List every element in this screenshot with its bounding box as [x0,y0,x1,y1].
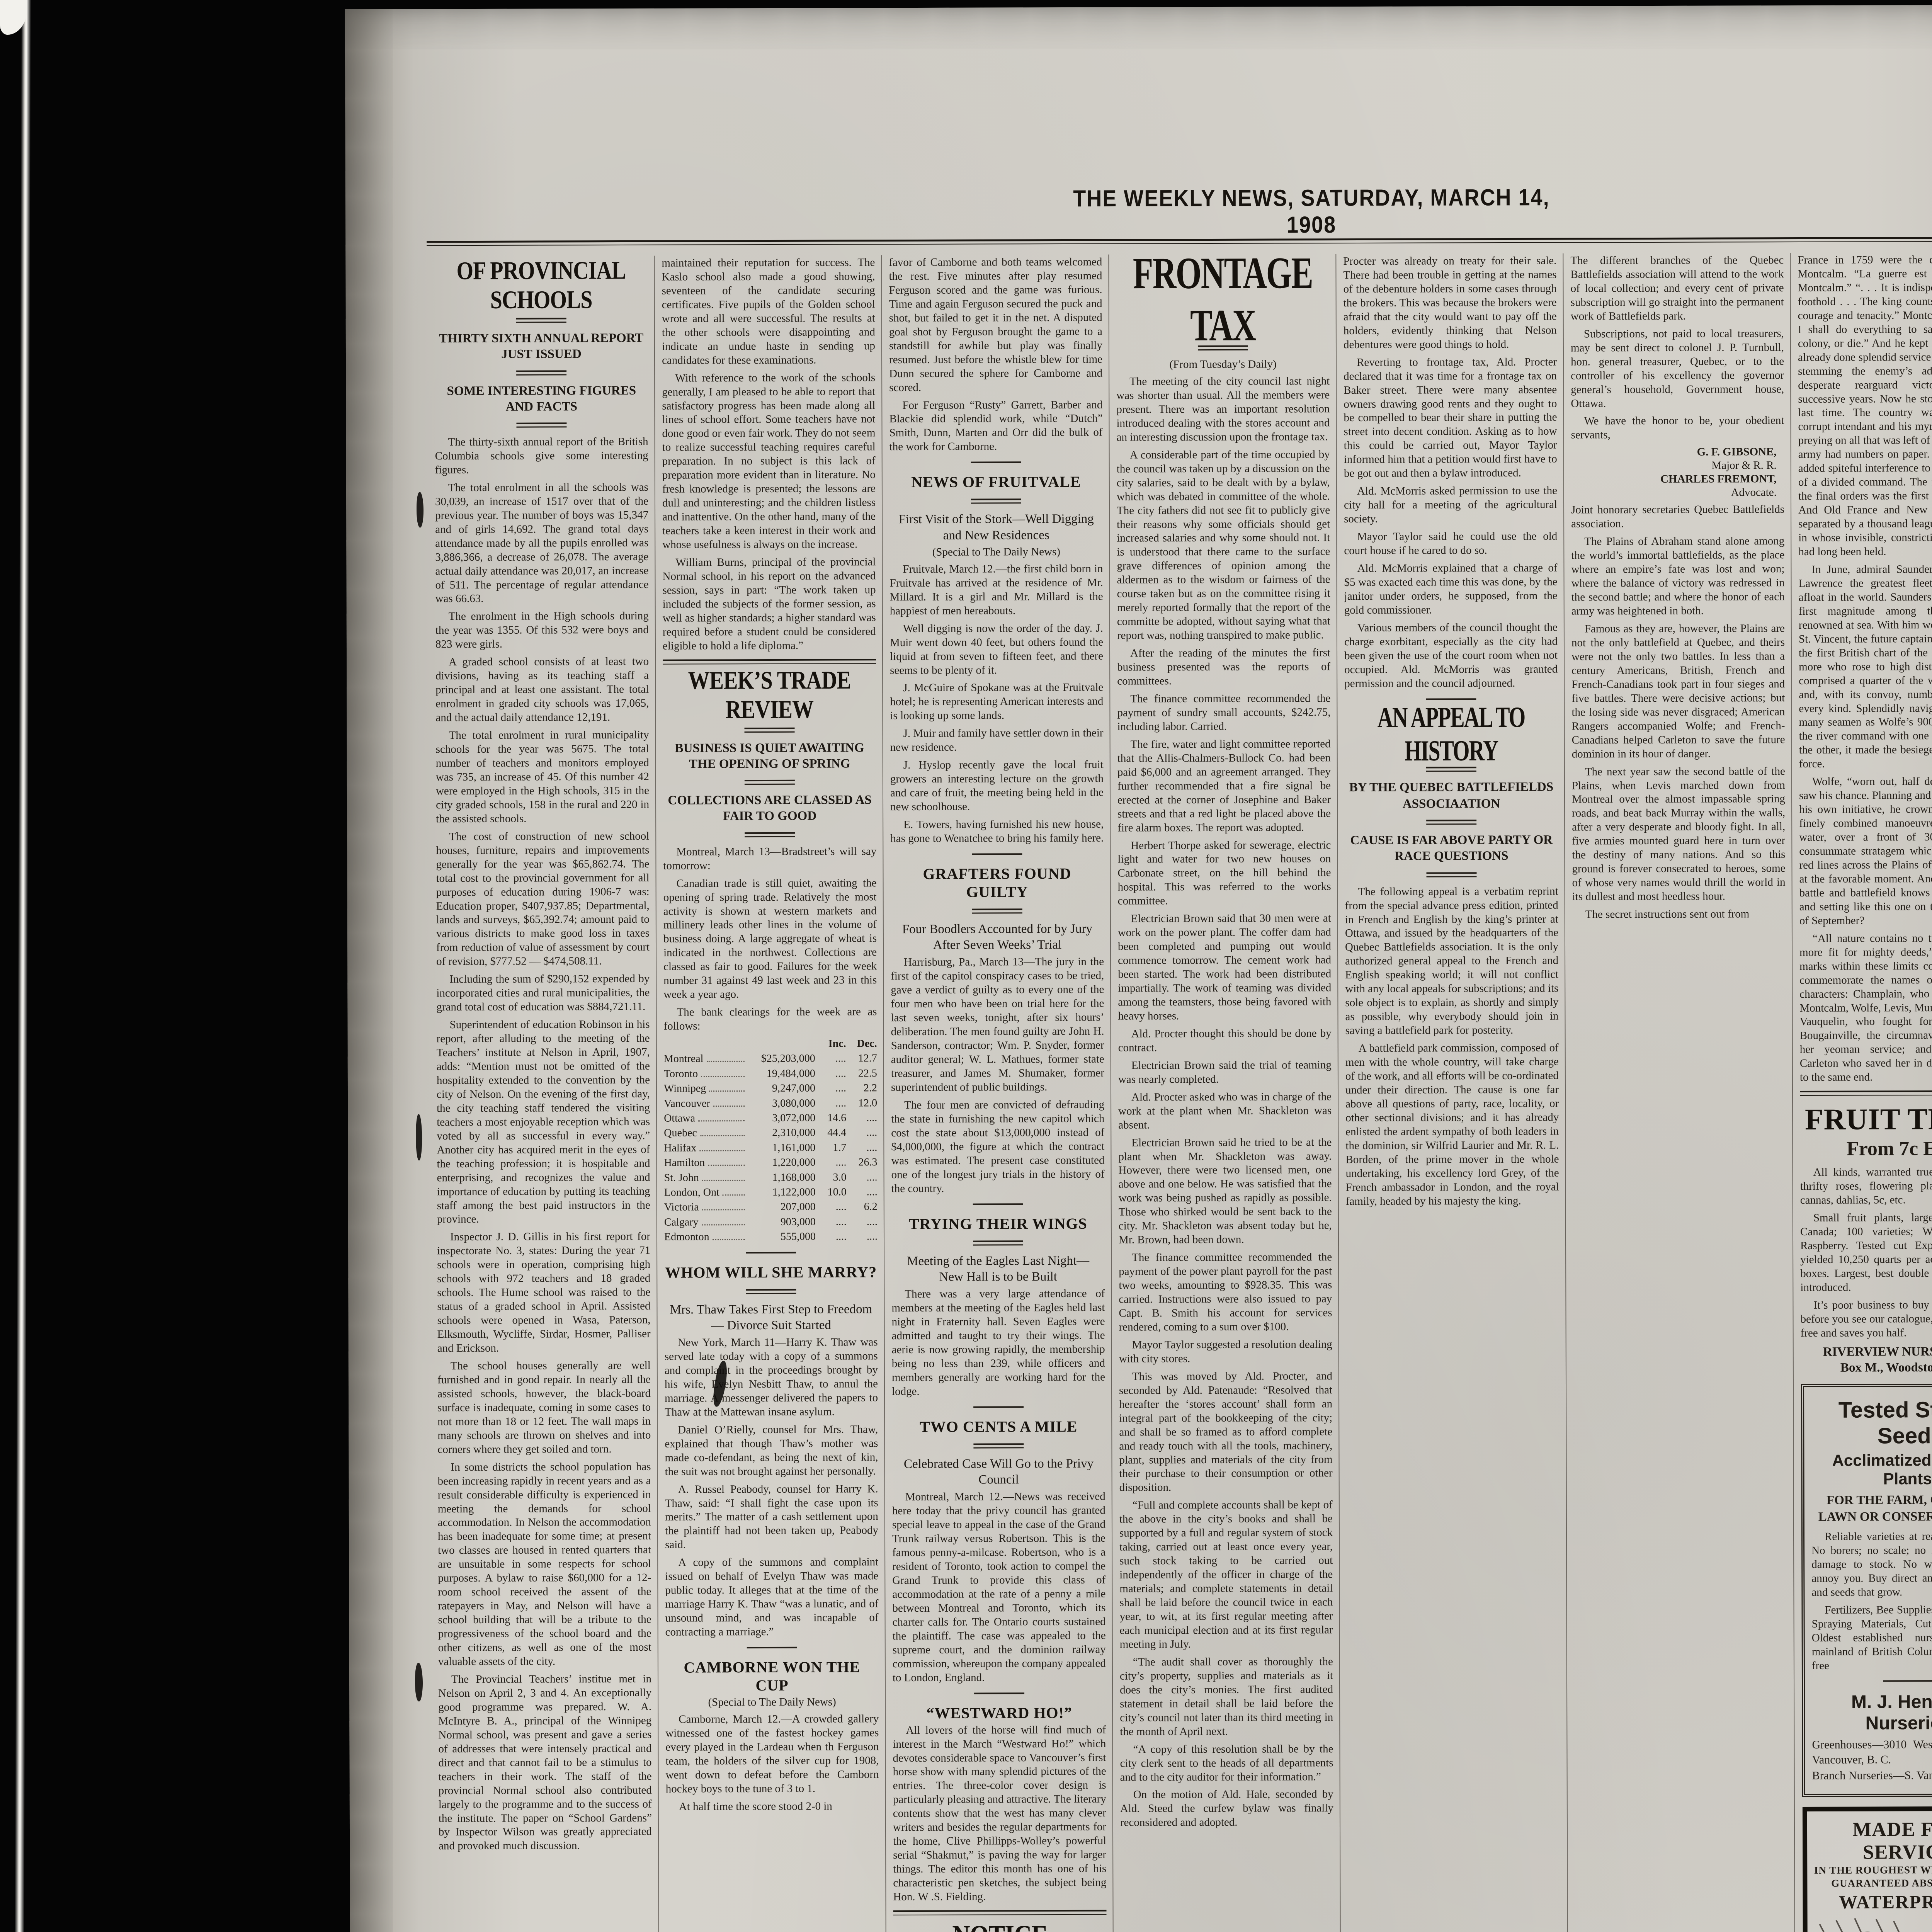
paragraph: “Full and complete accounts shall be kep… [1119,1498,1333,1652]
ad-brand-column: TOWER’S FISH BRAND POMMEL SLICKERS This … [1918,1916,1932,1932]
paragraph: The next year saw the second battle of t… [1572,765,1786,904]
divider-rule [971,499,1021,504]
table-row: Halifax1,161,0001.7.... [664,1141,877,1155]
paragraph: The different branches of the Quebec Bat… [1570,253,1784,323]
ink-smudge [415,1663,423,1701]
appeal-byline-2: ASSOCIAATION [1349,796,1554,813]
article-title-westward: “WESTWARD HO!” [893,1703,1106,1722]
table-row: Quebec2,310,00044.4.... [664,1126,877,1141]
paragraph: A graded school consists of at least two… [435,655,649,725]
paragraph: maintained their reputation for success.… [662,256,875,367]
paragraph: For Ferguson “Rusty” Garrett, Barber and… [889,398,1102,454]
paragraph: The total enrolment in all the schools w… [435,481,649,606]
ad-headline: MADE FOR SERVICE [1813,1818,1932,1864]
article-title-appeal: AN APPEAL TO HISTORY [1344,709,1558,759]
stock-seed-ad: Tested Stock Seed, Acclimatized Trees, P… [1803,1386,1932,1796]
dotted-leader [723,1194,745,1196]
paragraph: The fire, water and light committee repo… [1117,737,1331,835]
paragraph: Various members of the council thought t… [1344,621,1558,690]
table-row: Montreal$25,203,000....12.7 [664,1052,877,1066]
fruit-trees-ad: FRUIT TREES From 7c Each All kinds, warr… [1800,1102,1932,1376]
appeal-signature-title: Advocate. [1571,486,1777,500]
paragraph: With reference to the work of the school… [662,371,876,552]
dotted-leader [702,1180,745,1181]
divider-rule [516,318,566,323]
divider-rule [745,780,795,785]
appeal-signature-title: Major & R. R. [1571,459,1777,473]
divider-rule [974,1692,1024,1696]
paragraph: favor of Camborne and both teams welcome… [889,255,1102,395]
dateline: (Special to The Daily News) [889,546,1103,559]
paragraph: The Provincial Teachers’ institue met in… [438,1672,652,1854]
paragraph: The secret instructions sent out from [1572,907,1786,922]
paragraph: “All nature contains no truer nobler sce… [1799,931,1932,1085]
divider-rule [516,370,566,375]
divider-rule [746,1289,796,1294]
paragraph: Mayor Taylor said he could use the old c… [1344,530,1557,558]
table-header-dec: Dec. [846,1037,877,1051]
paragraph: The following appeal is a verbatim repri… [1345,884,1559,1038]
paragraph: Wolfe, “worn out, half despairing,” at l… [1799,775,1932,928]
dotted-leader [700,1135,745,1136]
newspaper-page: THE WEEKLY NEWS, SATURDAY, MARCH 14, 190… [345,5,1932,1932]
ad-subtitle: From 7c Each [1800,1137,1932,1160]
paragraph: Well digging is now the order of the day… [890,621,1103,677]
dotted-leader [713,1105,745,1107]
dotted-leader [709,1090,745,1092]
paragraph: A copy of the summons and complaint issu… [665,1556,879,1639]
dotted-leader [701,1076,745,1077]
ad-paragraph: All kinds, warranted true to name, clean… [1800,1165,1932,1207]
paragraph: Montreal, March 13—Bradstreet’s will say… [663,845,876,873]
article-deck: First Visit of the Stork—Well Digging an… [893,511,1099,544]
book-spine-edge [14,0,31,1932]
divider-rule [1427,872,1477,877]
ad-subtitle: Acclimatized Trees, Plants [1811,1451,1932,1488]
article-deck: COLLECTIONS ARE CLASSED AS FAIR TO GOOD [667,792,872,825]
ink-smudge [416,1114,422,1160]
paragraph: Ald. McMorris asked permission to use th… [1344,484,1557,526]
article-title-camborne: CAMBORNE WON THE CUP [665,1658,879,1694]
paragraph: A. Russel Peabody, counsel for Harry K. … [665,1482,878,1552]
paragraph: There was a very large attendance of mem… [891,1287,1105,1399]
article-deck: THIRTY SIXTH ANNUAL REPORT JUST ISSUED [439,330,644,363]
section-rule [893,1910,1107,1915]
ad-waterproof: WATERPROOF [1813,1891,1932,1913]
paragraph: The bank clearings for the week are as f… [663,1005,877,1033]
paragraph: The total enrolment in rural municipalit… [436,728,650,826]
appeal-signature: G. F. GIBSONE, [1571,446,1777,459]
nursery-name: M. J. Henry’s Nurseries [1812,1691,1932,1734]
ad-subheadline: IN THE ROUGHEST WEATHER AND GUARANTEED A… [1813,1864,1932,1890]
dotted-leader [702,1209,745,1211]
article-deck: SOME INTERESTING FIGURES AND FACTS [439,383,644,415]
ad-title: Tested Stock Seed, [1811,1397,1932,1449]
divider-rule [973,1240,1023,1245]
article-title-fruitvale: NEWS OF FRUITVALE [889,473,1103,491]
paragraph: Harrisburg, Pa., March 13—The jury in th… [891,955,1104,1095]
table-row: Toronto19,484,000....22.5 [664,1066,877,1081]
rider-illustration [1813,1916,1919,1932]
paragraph: At half time the score stood 2-0 in [666,1799,879,1814]
paragraph: Herbert Thorpe asked for sewerage, elect… [1117,838,1331,908]
paragraph: Montreal, March 12.—News was received he… [892,1490,1106,1685]
column-7: France in 1759 were the death warrant of… [1798,253,1932,1932]
divider-rule [971,462,1021,465]
table-row: St. John1,168,0003.0.... [664,1170,878,1185]
article-title-eagles: TRYING THEIR WINGS [891,1214,1105,1233]
paragraph: Ald. Procter thought this should be done… [1118,1027,1332,1055]
paragraph: Electrician Brown said he tried to be at… [1118,1136,1332,1247]
column-6: The different branches of the Quebec Bat… [1570,253,1789,1932]
paragraph: Daniel O’Rielly, counsel for Mrs. Thaw, … [665,1423,878,1479]
paragraph: Procter was already on treaty for their … [1343,254,1557,352]
paragraph: In some districts the school population … [437,1460,651,1669]
appeal-secretaries: Joint honorary secretaries Quebec Battle… [1571,503,1784,531]
paragraph: The finance committee recommended the pa… [1117,692,1330,734]
divider-rule [973,1406,1024,1410]
column-1: OF PROVINCIAL SCHOOLS THIRTY SIXTH ANNUA… [434,257,653,1932]
divider-rule [745,727,795,732]
ad-signature: RIVERVIEW NURSERY CO., [1804,1344,1932,1360]
article-title-schools: OF PROVINCIAL SCHOOLS [434,260,648,310]
paragraph: Superintendent of education Robinson in … [436,1018,650,1227]
pommel-slickers-ad: MADE FOR SERVICE IN THE ROUGHEST WEATHER… [1803,1806,1932,1932]
divider-rule [973,1443,1024,1448]
table-row: Winnipeg9,247,000....2.2 [664,1082,877,1096]
article-deck: BUSINESS IS QUIET AWAITING THE OPENING O… [667,740,872,772]
paragraph: Including the sum of $290,152 expended b… [436,972,650,1014]
paragraph: The cost of construction of new school h… [436,830,650,969]
paragraph: This was moved by Ald. Procter, and seco… [1119,1369,1333,1495]
paragraph: Fruitvale, March 12.—the first child bor… [889,562,1103,618]
scan-background: THE WEEKLY NEWS, SATURDAY, MARCH 14, 190… [0,0,1932,1932]
paragraph: On the motion of Ald. Hale, seconded by … [1120,1788,1333,1830]
paragraph: New York, March 11—Harry K. Thaw was ser… [665,1335,878,1419]
paragraph: Camborne, March 12.—A crowded gallery wi… [665,1712,879,1796]
brand-name: TOWER’S [1918,1916,1932,1928]
appeal-byline-1: BY THE QUEBEC BATTLEFIELDS [1349,779,1554,796]
dotted-leader [708,1165,745,1166]
ad-body-row: TOWER’S FISH BRAND POMMEL SLICKERS This … [1813,1916,1932,1932]
dateline: (From Tuesday’s Daily) [1116,358,1330,371]
ad-address: Box M., Woodstock Ont. [1804,1360,1932,1376]
article-title-thaw: WHOM WILL SHE MARRY? [664,1263,878,1281]
nursery-branch: Branch Nurseries—S. Vancouver. [1812,1768,1932,1783]
column-2: maintained their reputation for success.… [662,256,880,1932]
paragraph: Subscriptions, not paid to local treasur… [1571,327,1784,411]
paragraph: In June, admiral Saunders led up the St.… [1798,563,1932,772]
article-deck: Celebrated Case Will Go to the Privy Cou… [896,1456,1101,1488]
paragraph: J. McGuire of Spokane was at the Fruitva… [890,681,1103,723]
table-row: Hamilton1,220,000....26.3 [664,1155,877,1170]
paragraph: “A copy of this resolution shall be by t… [1120,1742,1333,1784]
dateline: (Special to The Daily News) [665,1696,879,1709]
divider-rule [747,1647,797,1650]
paragraph: A battlefield park commission, composed … [1345,1041,1559,1209]
paragraph: Famous as they are, however, the Plains … [1571,622,1785,761]
paragraph: The school houses generally are well fur… [437,1359,651,1457]
appeal-signature: CHARLES FREMONT, [1571,473,1777,486]
paragraph: E. Towers, having furnished his new hous… [890,818,1104,846]
paragraph: Ald. McMorris explained that a charge of… [1344,561,1557,617]
table-row: London, Ont1,122,00010.0.... [664,1185,878,1200]
article-title-grafters: GRAFTERS FOUND GUILTY [890,864,1104,901]
paragraph: A considerable part of the time occupied… [1117,448,1330,643]
table-header-inc: Inc. [815,1037,846,1051]
paragraph: Canadian trade is still quiet, awaiting … [663,876,877,1002]
column-3: favor of Camborne and both teams welcome… [889,255,1107,1932]
ink-smudge [417,492,423,527]
dotted-leader [698,1120,745,1121]
divider-rule [972,853,1022,857]
table-row: Vancouver3,080,000....12.0 [664,1096,877,1111]
divider-rule [746,1252,796,1255]
section-rule [1800,1090,1932,1096]
ad-paragraph: Small fruit plants, largest assortment i… [1800,1211,1932,1295]
ad-paragraph: It’s poor business to buy a thing anywhe… [1800,1298,1932,1340]
dotted-leader [713,1239,745,1240]
paragraph: Inspector J. D. Gillis in his first repo… [437,1230,651,1355]
article-deck: Meeting of the Eagles Last Night—New Hal… [895,1253,1101,1285]
article-title-twocents: TWO CENTS A MILE [892,1417,1105,1435]
masthead-title: THE WEEKLY NEWS, SATURDAY, MARCH 14, 190… [1060,184,1563,239]
section-rule [663,659,876,664]
article-title-frontage: FRONTAGE TAX [1116,260,1330,338]
column-layout: OF PROVINCIAL SCHOOLS THIRTY SIXTH ANNUA… [434,253,1932,1932]
article-deck: Four Boodlers Accounted for by Jury Afte… [895,921,1100,954]
paragraph: The thirty-sixth annual report of the Br… [435,435,648,477]
table-row: Victoria207,000....6.2 [664,1200,878,1215]
dotted-leader [699,1150,745,1151]
ad-paragraph: Fertilizers, Bee Supplies, Spray Pumps, … [1811,1603,1932,1673]
article-title-trade: WEEK’S TRADE REVIEW [663,670,876,720]
paragraph: All lovers of the horse will find much o… [893,1723,1106,1904]
column-4: FRONTAGE TAX (From Tuesday’s Daily) The … [1116,255,1334,1932]
table-row: Calgary903,000........ [664,1215,878,1230]
column-5: Procter was already on treaty for their … [1343,254,1561,1932]
paragraph: J. Muir and family have settler down in … [890,726,1104,755]
paragraph: We have the honor to be, your obedient s… [1571,414,1784,442]
spacer [667,1047,745,1048]
table-row: Ottawa3,072,00014.6.... [664,1111,877,1126]
ad-paragraph: Reliable varieties at reasonable prices.… [1811,1530,1932,1600]
table-row: Edmonton555,000........ [664,1230,878,1244]
paragraph: The meeting of the city council last nig… [1116,374,1330,444]
paragraph: Ald. Procter asked who was in charge of … [1118,1090,1332,1132]
notice-title: NOTICE [893,1921,1107,1932]
divider-rule [516,422,566,427]
divider-rule [972,908,1022,913]
paragraph: The Plains of Abraham stand alone among … [1571,534,1785,618]
paragraph: Electrician Brown said that 30 men were … [1118,912,1332,1023]
divider-rule [1426,820,1476,825]
nursery-address: Greenhouses—3010 Westminster Road, Vanco… [1812,1737,1932,1767]
table-header-row: Inc. Dec. [664,1037,877,1051]
article-deck: Mrs. Thaw Takes First Step to Freedom— D… [668,1301,874,1334]
divider-rule [745,832,795,837]
paragraph: Reverting to frontage tax, Ald. Procter … [1344,355,1557,481]
ad-title: FRUIT TREES [1800,1102,1932,1137]
paragraph: The four men are convicted of defrauding… [891,1098,1105,1196]
dotted-leader [706,1061,744,1062]
dotted-leader [702,1224,745,1225]
paragraph: After the reading of the minutes the fir… [1117,646,1330,688]
paragraph: The enrolment in the High schools during… [435,609,649,651]
divider-rule [1883,1680,1932,1684]
paragraph: William Burns, principal of the provinci… [662,555,876,653]
divider-rule [973,1203,1023,1207]
paragraph: The finance committee recommended the pa… [1119,1250,1332,1334]
paragraph: Electrician Brown said the trial of team… [1118,1058,1332,1087]
paragraph: J. Hyslop recently gave the local fruit … [890,758,1104,814]
ad-tagline: FOR THE FARM, GARDEN, LAWN OR CONSERVA- … [1811,1492,1932,1526]
article-deck: CAUSE IS FAR ABOVE PARTY OR RACE QUESTIO… [1349,832,1554,865]
paragraph: Mayor Taylor suggested a resolution deal… [1119,1338,1332,1366]
paragraph: France in 1759 were the death warrant of… [1798,253,1932,559]
paragraph: “The audit shall cover as thoroughly the… [1120,1655,1333,1739]
